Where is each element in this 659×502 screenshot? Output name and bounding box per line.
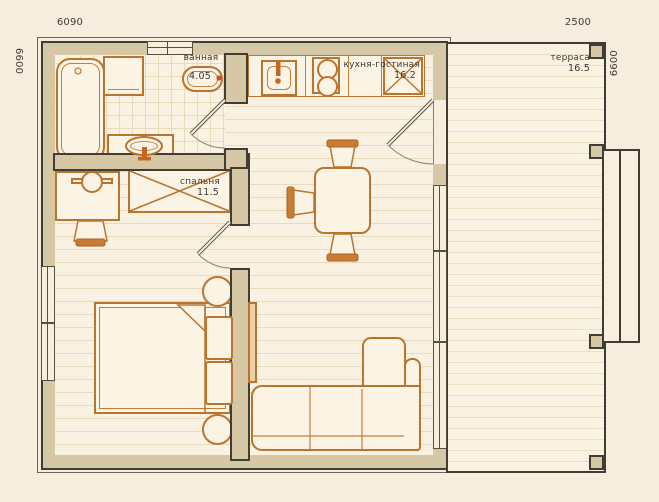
bathroom-sink [125,136,163,156]
room-label-bedroom: спальня [176,177,224,187]
window-right-wall [433,185,447,449]
washing-machine [103,56,144,96]
window-left-wall [41,266,55,381]
terrace-deck [446,42,606,473]
sofa-chaise [362,337,406,389]
mirror [81,171,103,193]
room-label-bathroom: ванная [178,53,224,63]
interior-wall [224,53,248,104]
dimension-right-height: 6600 [610,50,620,76]
room-label-kitchen-living: кухня-гостиная [336,60,420,70]
terrace-door-opening [433,100,446,164]
terrace-post [589,455,604,470]
floor-plan-canvas: 6090 2500 6600 6600 ванная 4.05 кухня-го… [0,0,659,502]
counter-divider [305,55,306,97]
room-area-kitchen-living: 16.2 [390,71,416,81]
dimension-terrace-width: 2500 [556,18,600,28]
dining-table [314,167,371,234]
nightstand [202,276,233,307]
entrance-step [602,149,640,343]
terrace-post [589,334,604,349]
room-area-bathroom: 4.05 [186,72,214,82]
dimension-house-width: 6090 [48,18,92,28]
nightstand [202,414,233,445]
pillow [205,361,233,405]
pillow [205,316,233,360]
room-label-terrace: терраса [548,53,590,63]
room-area-bedroom: 11.5 [194,188,222,198]
tv [248,302,257,383]
room-area-terrace: 16.5 [560,64,590,74]
step-divider [619,151,621,341]
stove-burner [317,76,338,97]
bathtub [56,58,105,161]
terrace-post [589,44,604,59]
terrace-post [589,144,604,159]
interior-wall [230,268,250,461]
dimension-left-height: 6600 [13,48,23,74]
kitchen-sink [261,60,297,96]
interior-wall [53,153,250,171]
interior-wall [230,167,250,226]
sofa [251,385,421,451]
